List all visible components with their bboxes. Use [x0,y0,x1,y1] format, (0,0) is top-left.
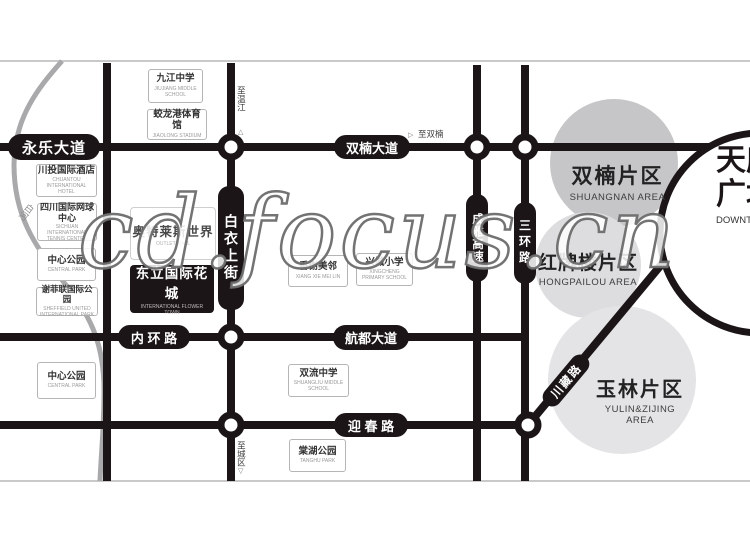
area-name-en: HONGPAILOU AREA [528,277,648,288]
poi-name-en: JIAOLONG STADIUM [153,133,202,139]
poi-shuangliu-school: 双流中学 SHUANGLIU MIDDLE SCHOOL [288,364,349,397]
hongpailou-area-label: 红牌楼片区 HONGPAILOU AREA [528,248,648,288]
downtown-label: 天府 广场 DOWNTOWN AREA [716,144,750,226]
poi-name: 双流中学 [299,369,337,380]
poi-name: 四川国际网球中心 [39,202,95,223]
junction-circle [518,415,538,435]
downtown-line1: 天府 [716,144,750,178]
project-name: 东立国际花城 [130,262,214,302]
poi-central-park: 中心公园 CENTRAL PARK [37,248,96,281]
poi-name-en: SHEFFIELD UNITED INTERNATIONAL PARK [38,306,96,318]
direction-to-city: 至城区 [236,441,245,481]
location-map: 白河 永乐大道 双楠大道 内 环 路 航都大道 迎 春 路 白衣上街 成雅高速 … [0,0,750,560]
poi-name: 蛟龙港体育馆 [149,110,205,132]
mall-name: 奥特莱斯世界 [132,221,213,240]
road-label-baiyi-street: 白衣上街 [218,186,244,310]
down-triangle-icon: ▽ [238,467,243,475]
poi-xiangxie-meilin: 香榭美邻 XIANG XIE MEI LIN [288,255,348,287]
project-box: 东立国际花城 INTERNATIONAL FLOWER TOWN [130,265,214,313]
junction-circle [221,415,241,435]
junction-circle [221,327,241,347]
road-label-yingchun: 迎 春 路 [334,413,408,437]
poi-name-en: SICHUAN INTERNATIONAL TENNIS CENTER [39,224,95,242]
poi-name: 中心公园 [47,372,85,383]
shuangnan-area-label: 双楠片区 SHUANGNAN AREA [545,160,690,203]
poi-central-park-2: 中心公园 CENTRAL PARK [37,362,96,399]
junction-circle [515,137,535,157]
road-label-yongle: 永乐大道 [8,134,100,160]
poi-tennis-center: 四川国际网球中心 SICHUAN INTERNATIONAL TENNIS CE… [37,203,97,241]
poi-name: 棠湖公园 [298,447,336,458]
poi-tanghu-park: 棠湖公园 TANGHU PARK [289,439,346,472]
junction-circle [221,137,241,157]
poi-chuantou-hotel: 川投国际酒店 CHUANTOU INTERNATIONAL HOTEL [36,164,97,197]
project-name-en: INTERNATIONAL FLOWER TOWN [137,304,207,317]
poi-sheffield-park: 谢菲联国际公园 SHEFFIELD UNITED INTERNATIONAL P… [36,287,98,316]
poi-outlet-mall: 奥特莱斯世界 OUTLET MALL [130,207,216,260]
road-label-shuangnan-ave: 双楠大道 [334,135,410,159]
poi-name-en: SHUANGLIU MIDDLE SCHOOL [290,380,347,392]
poi-name: 谢菲联国际公园 [38,285,96,305]
poi-name-en: CENTRAL PARK [48,383,86,389]
yulin-area-label: 玉林片区 YULIN&ZIJING AREA [570,373,710,426]
poi-name: 兴城小学 [365,258,403,269]
poi-name-en: XINGCHENG PRIMARY SCHOOL [358,269,411,281]
poi-name-en: XIANG XIE MEI LIN [296,274,340,280]
direction-to-shuangnan: 至双楠 [418,130,444,139]
mall-name-en: OUTLET MALL [156,241,190,247]
poi-name: 中心公园 [47,256,85,267]
downtown-en: DOWNTOWN AREA [716,215,750,226]
direction-to-wenjiang: 至温江 [236,86,245,128]
right-triangle-icon: ▷ [408,131,413,139]
area-name: 红牌楼片区 [528,248,648,275]
junction-circle [467,137,487,157]
poi-name: 川投国际酒店 [38,166,95,177]
poi-xingcheng-school: 兴城小学 XINGCHENG PRIMARY SCHOOL [356,253,413,286]
up-triangle-icon: △ [238,128,243,136]
poi-jiaolong-stadium: 蛟龙港体育馆 JIAOLONG STADIUM [147,109,207,140]
area-name: 双楠片区 [545,160,690,190]
poi-name-en: CENTRAL PARK [48,267,86,273]
area-name-en: YULIN&ZIJING AREA [593,404,688,426]
poi-name: 香榭美邻 [299,262,337,273]
road-label-neihuan: 内 环 路 [118,325,190,349]
road-label-chengya: 成雅高速 [466,194,488,282]
poi-jiujiang-school: 九江中学 JIUJIANG MIDDLE SCHOOL [148,69,203,103]
area-name: 玉林片区 [570,373,710,402]
road-label-hangdu: 航都大道 [333,325,409,350]
area-name-en: SHUANGNAN AREA [545,192,690,203]
poi-name-en: CHUANTOU INTERNATIONAL HOTEL [38,177,95,195]
poi-name-en: JIUJIANG MIDDLE SCHOOL [150,86,201,98]
poi-name: 九江中学 [156,74,194,85]
poi-name-en: TANGHU PARK [300,458,335,464]
downtown-line2: 广场 [716,178,750,212]
road-junctions [221,137,538,435]
